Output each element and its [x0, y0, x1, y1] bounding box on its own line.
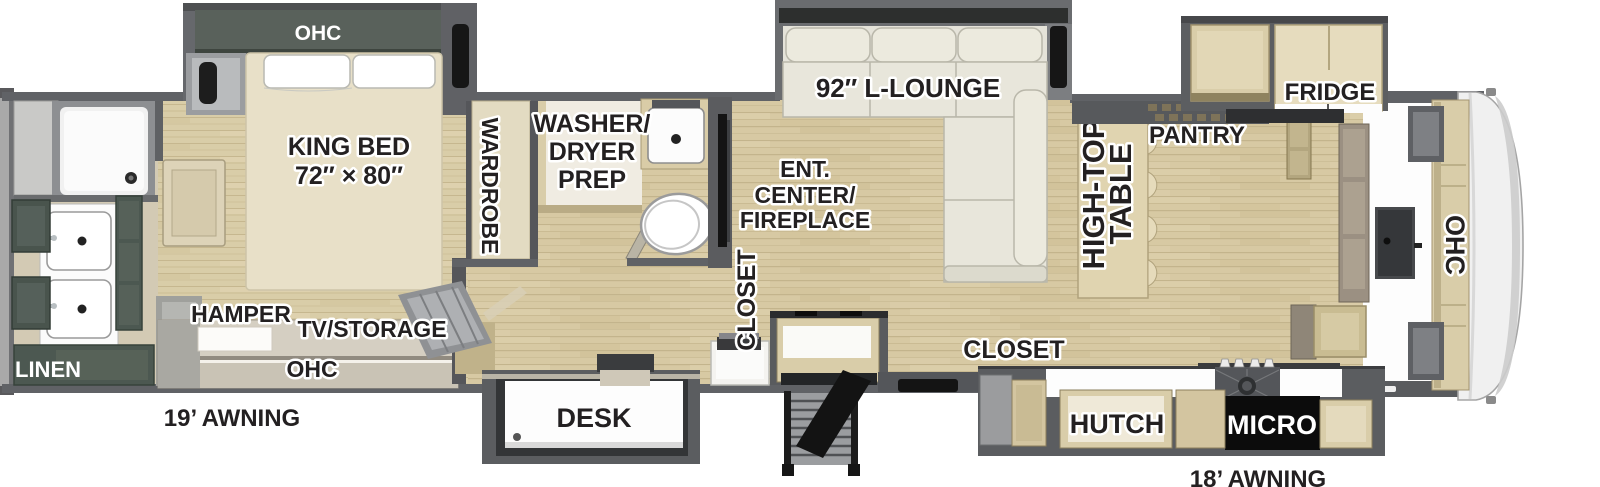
svg-text:TV/STORAGE: TV/STORAGE — [297, 316, 446, 342]
svg-text:ENT.: ENT. — [780, 156, 830, 182]
svg-text:HAMPER: HAMPER — [191, 301, 291, 327]
svg-text:KING BED: KING BED — [288, 133, 410, 161]
svg-text:HUTCH: HUTCH — [1070, 409, 1165, 439]
svg-text:MICRO: MICRO — [1227, 410, 1317, 440]
svg-text:DRYER: DRYER — [549, 138, 636, 166]
svg-text:FIREPLACE: FIREPLACE — [740, 207, 870, 233]
svg-text:18’ AWNING: 18’ AWNING — [1190, 466, 1326, 487]
svg-text:92″ L-LOUNGE: 92″ L-LOUNGE — [816, 73, 1000, 103]
svg-text:TABLE: TABLE — [1103, 143, 1138, 244]
svg-text:WASHER/: WASHER/ — [534, 110, 651, 138]
svg-text:FRIDGE: FRIDGE — [1285, 79, 1376, 106]
svg-text:OHC: OHC — [286, 356, 337, 382]
svg-text:72″ × 80″: 72″ × 80″ — [295, 162, 403, 190]
svg-text:CLOSET: CLOSET — [963, 336, 1064, 364]
svg-text:CLOSET: CLOSET — [733, 249, 761, 350]
svg-text:LINEN: LINEN — [15, 357, 81, 382]
svg-text:CENTER/: CENTER/ — [755, 182, 857, 208]
svg-text:PANTRY: PANTRY — [1149, 122, 1245, 149]
svg-text:OHC: OHC — [1440, 215, 1470, 275]
svg-text:PREP: PREP — [558, 166, 626, 194]
svg-text:19’ AWNING: 19’ AWNING — [164, 405, 300, 432]
svg-text:DESK: DESK — [556, 403, 632, 433]
svg-text:WARDROBE: WARDROBE — [477, 118, 503, 255]
svg-text:OHC: OHC — [295, 22, 342, 45]
